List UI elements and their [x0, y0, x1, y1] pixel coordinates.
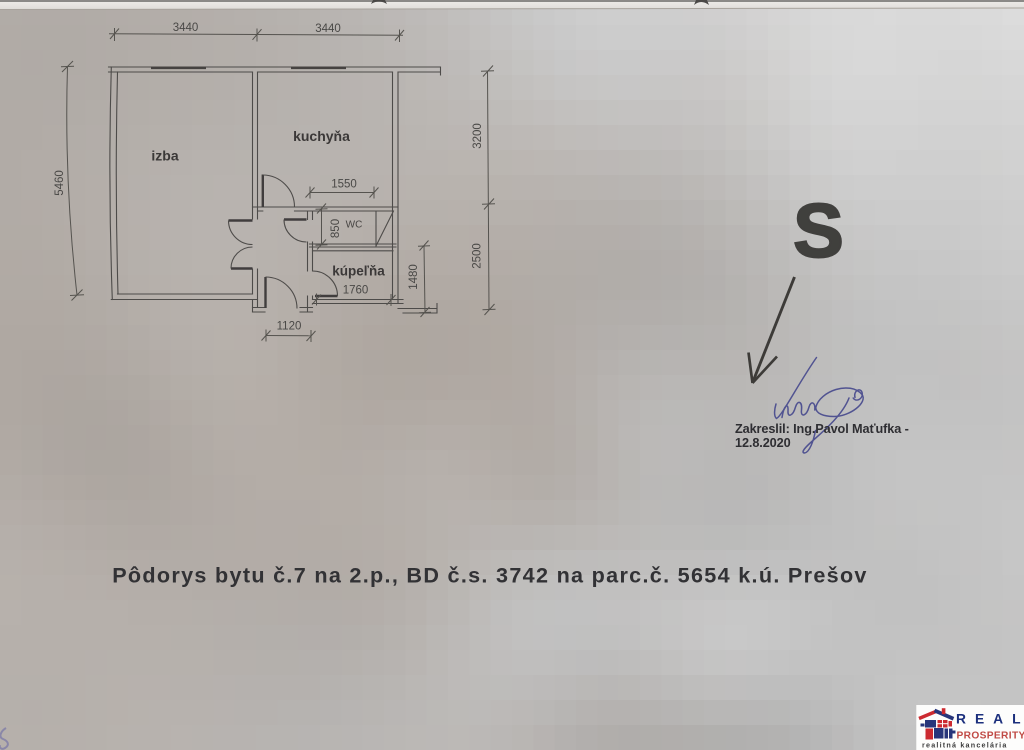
- svg-text:1760: 1760: [343, 285, 369, 297]
- svg-text:850: 850: [330, 219, 342, 238]
- svg-text:12.8.2020: 12.8.2020: [735, 436, 791, 450]
- svg-text:1120: 1120: [277, 321, 302, 333]
- svg-text:2500: 2500: [472, 243, 484, 269]
- svg-text:1550: 1550: [331, 179, 357, 191]
- svg-text:Pôdorys bytu č.7 na 2.p., BD č: Pôdorys bytu č.7 na 2.p., BD č.s. 3742 n…: [112, 563, 868, 588]
- svg-text:3440: 3440: [315, 23, 341, 35]
- svg-text:kuchyňa: kuchyňa: [293, 128, 350, 144]
- svg-text:izba: izba: [151, 148, 178, 164]
- svg-text:Zakreslil: Ing.Pavol Maťufka -: Zakreslil: Ing.Pavol Maťufka -: [735, 422, 909, 436]
- svg-text:realitná kancelária: realitná kancelária: [922, 741, 1008, 750]
- svg-text:3200: 3200: [472, 123, 484, 149]
- svg-text:3440: 3440: [173, 22, 199, 34]
- svg-text:WC: WC: [346, 220, 363, 231]
- svg-text:5460: 5460: [54, 170, 66, 196]
- svg-text:kúpeľňa: kúpeľňa: [332, 264, 385, 279]
- svg-text:REAL: REAL: [956, 711, 1024, 726]
- svg-text:S: S: [793, 189, 844, 274]
- svg-text:1480: 1480: [408, 264, 420, 290]
